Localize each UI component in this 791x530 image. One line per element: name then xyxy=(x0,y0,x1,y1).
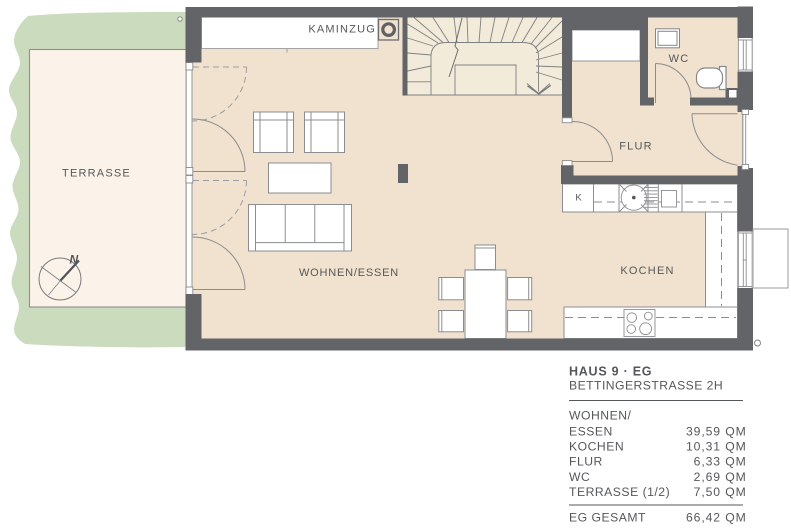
svg-text:EG GESAMT: EG GESAMT xyxy=(569,511,646,525)
svg-text:WOHNEN/: WOHNEN/ xyxy=(569,408,632,422)
svg-text:WC: WC xyxy=(669,53,690,65)
svg-text:66,42 QM: 66,42 QM xyxy=(686,511,747,525)
svg-text:WOHNEN/ESSEN: WOHNEN/ESSEN xyxy=(299,267,399,279)
svg-text:2,69 QM: 2,69 QM xyxy=(694,470,747,484)
svg-text:N: N xyxy=(70,253,79,267)
svg-text:6,33 QM: 6,33 QM xyxy=(694,455,747,469)
svg-text:FLUR: FLUR xyxy=(619,141,653,153)
svg-text:ESSEN: ESSEN xyxy=(569,424,613,438)
svg-text:7,50 QM: 7,50 QM xyxy=(694,485,747,499)
svg-text:KAMINZUG: KAMINZUG xyxy=(308,24,376,36)
svg-text:KOCHEN: KOCHEN xyxy=(620,265,674,277)
svg-text:K: K xyxy=(575,193,582,204)
svg-text:BETTINGERSTRASSE 2H: BETTINGERSTRASSE 2H xyxy=(569,379,723,393)
svg-text:TERRASSE (1/2): TERRASSE (1/2) xyxy=(569,485,670,499)
svg-text:KOCHEN: KOCHEN xyxy=(569,440,624,454)
svg-text:WC: WC xyxy=(569,470,590,484)
svg-text:10,31 QM: 10,31 QM xyxy=(686,440,747,454)
svg-text:39,59 QM: 39,59 QM xyxy=(686,424,747,438)
svg-text:TERRASSE: TERRASSE xyxy=(62,168,131,180)
svg-text:FLUR: FLUR xyxy=(569,455,603,469)
svg-text:HAUS 9 · EG: HAUS 9 · EG xyxy=(569,365,652,379)
